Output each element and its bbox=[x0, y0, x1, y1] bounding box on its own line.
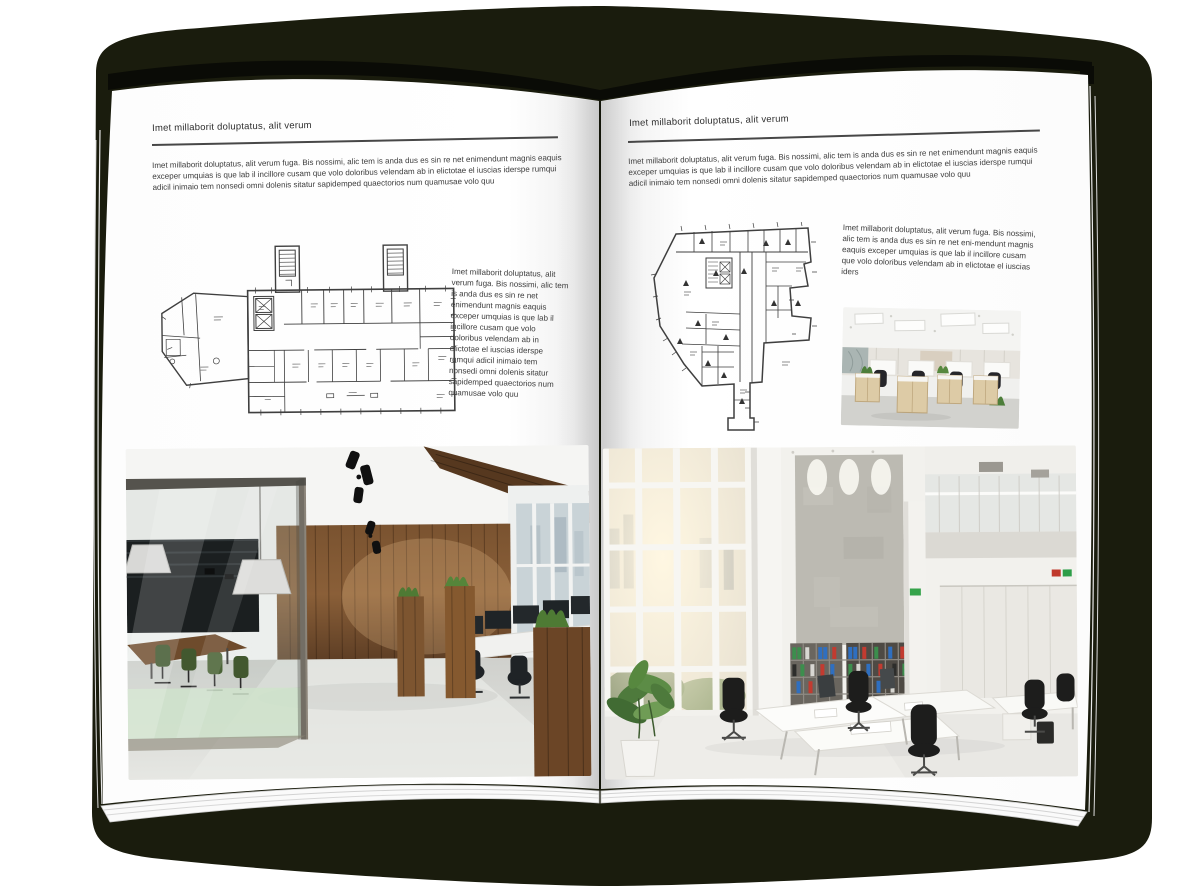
left-office-photo-art bbox=[126, 445, 592, 780]
right-office-photo bbox=[603, 445, 1078, 779]
right-small-office-photo-art bbox=[841, 307, 1021, 429]
left-side-paragraph: Imet millaborit doluptatus, alit verum f… bbox=[448, 266, 570, 402]
magazine-spread-mockup: Imet millaborit doluptatus, alit verum I… bbox=[0, 0, 1200, 891]
left-office-photo bbox=[126, 445, 592, 780]
left-floorplan-figure bbox=[155, 228, 457, 426]
right-floorplan-figure bbox=[646, 222, 826, 434]
right-small-office-photo bbox=[841, 307, 1021, 429]
right-office-photo-art bbox=[603, 445, 1078, 779]
right-side-paragraph: Imet millaborit doluptatus, alit verum f… bbox=[841, 222, 1041, 284]
